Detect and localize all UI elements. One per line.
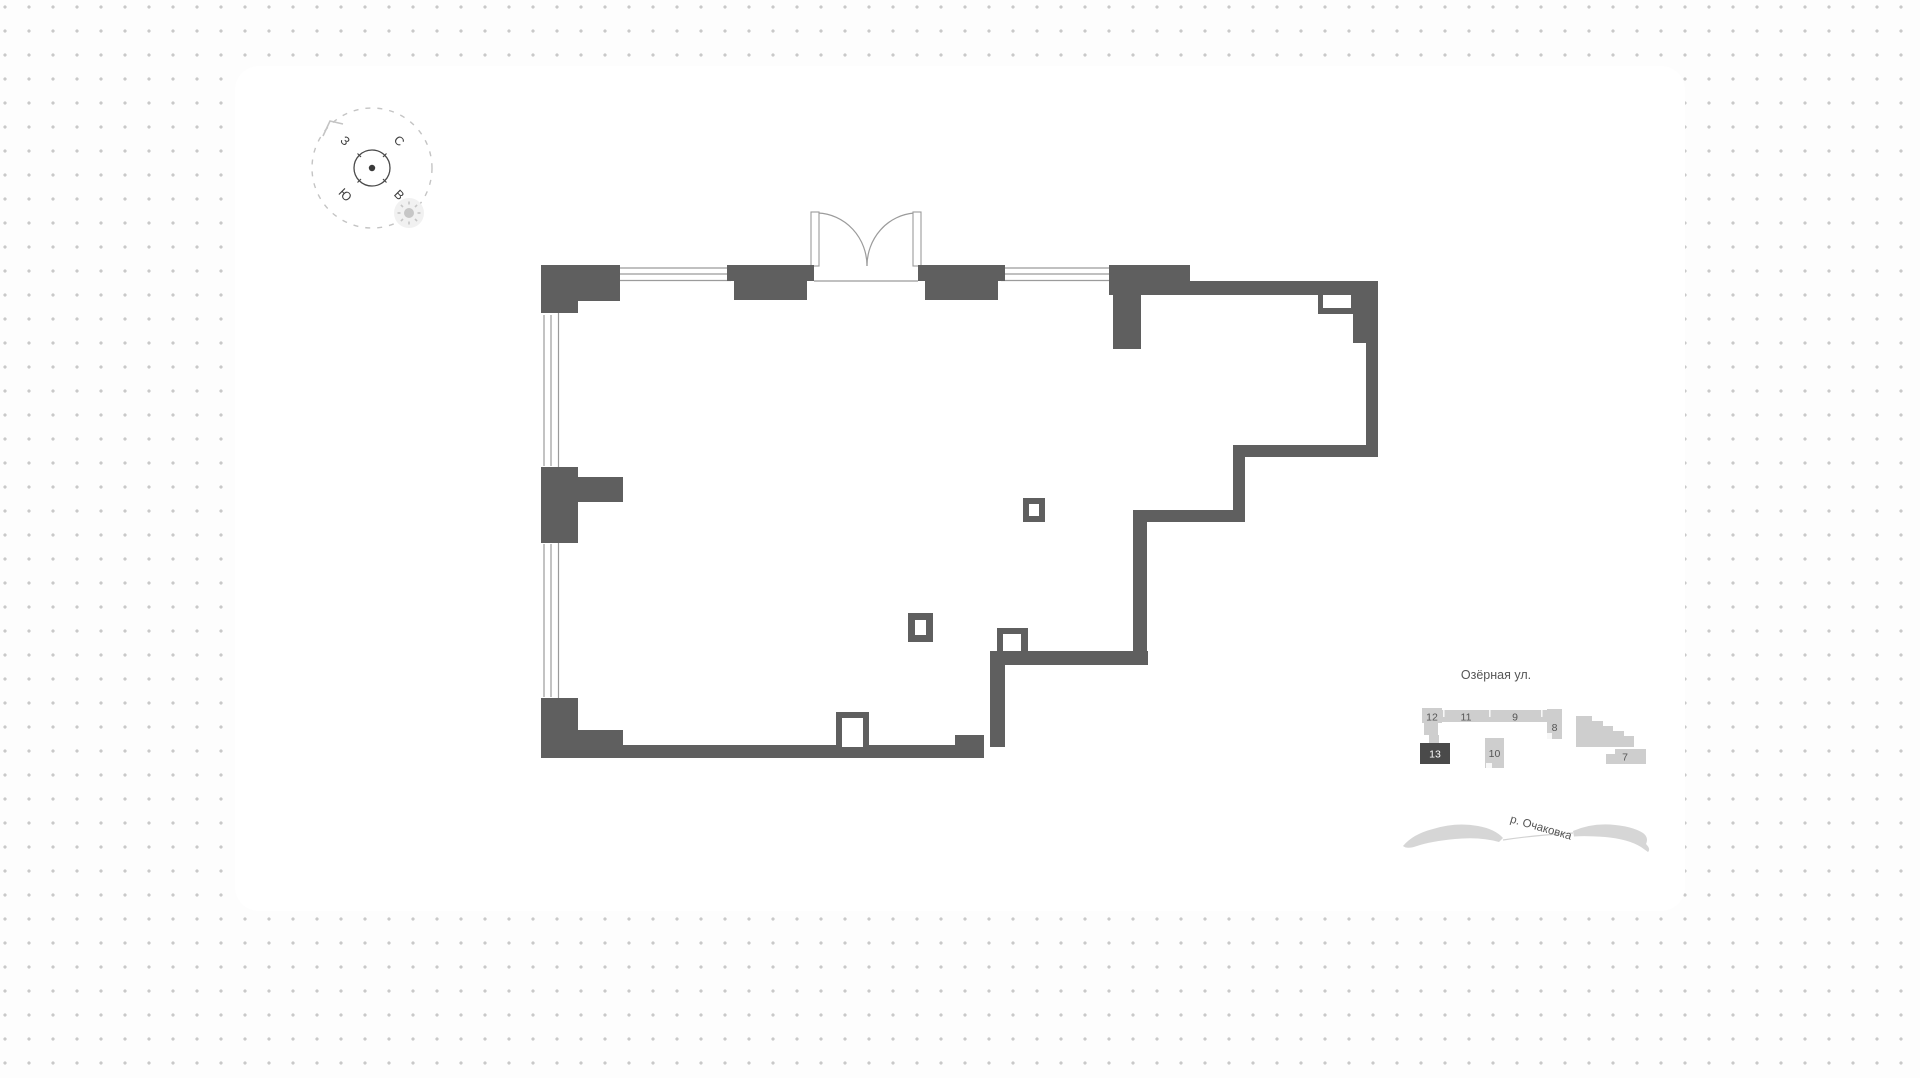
door-leaf-arc-left (818, 213, 867, 266)
wall-right (1366, 295, 1378, 457)
wall-corner-bottom-left (541, 698, 623, 758)
building-separator (1541, 710, 1543, 717)
wall-pillar (1113, 265, 1141, 349)
river-segment-right (1573, 824, 1649, 852)
window-top-left (618, 268, 731, 281)
wall-niche-opening (1323, 295, 1351, 308)
building-13-label[interactable]: 13 (1429, 749, 1441, 761)
floor-plan-overlay: С В Ю З (0, 0, 1920, 1078)
column-core (915, 620, 926, 635)
building-7-label[interactable]: 7 (1622, 752, 1628, 764)
mini-map: Озёрная ул. (1403, 668, 1649, 852)
building-connector (1429, 735, 1439, 744)
wall-segment (1190, 281, 1378, 295)
wall-bottom (620, 745, 984, 758)
compass-arrow-icon (323, 121, 343, 136)
window-top-right (1001, 268, 1113, 281)
compass-center-dot (369, 165, 375, 171)
river-segment-left (1403, 825, 1503, 848)
building-7-upper-shape[interactable] (1576, 716, 1634, 747)
building-connector (1424, 722, 1438, 735)
door-leaf-arc-right (867, 213, 914, 266)
wall-segment (925, 265, 998, 300)
window-left-lower (544, 542, 559, 699)
building-12-label[interactable]: 12 (1426, 712, 1438, 724)
floor-plan (541, 212, 1378, 758)
wall-step (1003, 651, 1148, 665)
wall-niche-opening (842, 718, 863, 747)
river: р. Очаковка (1403, 814, 1649, 852)
building-separator (1443, 710, 1445, 717)
compass: С В Ю З (312, 108, 432, 228)
door-frame-right (913, 212, 921, 266)
building-10-label[interactable]: 10 (1489, 748, 1501, 760)
wall-corner-top-left (541, 265, 620, 313)
door-frame-left (811, 212, 819, 266)
building-separator (1489, 710, 1491, 717)
wall-step (990, 651, 1005, 747)
wall-step (1233, 445, 1378, 457)
building-notch (1486, 763, 1492, 768)
wall-niche-opening (1003, 634, 1021, 651)
wall-segment (734, 265, 807, 300)
window-left-upper (544, 313, 559, 468)
column-core (1029, 504, 1039, 516)
wall-step (1133, 510, 1245, 522)
wall-step (1133, 510, 1147, 665)
entrance-door (811, 212, 921, 266)
building-8-label[interactable]: 8 (1552, 722, 1558, 734)
street-label: Озёрная ул. (1461, 668, 1531, 682)
building-11-label[interactable]: 11 (1461, 712, 1472, 724)
compass-direction-north: С (391, 133, 407, 149)
page-background: С В Ю З (0, 0, 1920, 1078)
compass-direction-west: З (337, 133, 352, 148)
sun-icon (394, 198, 424, 228)
compass-direction-south: Ю (336, 186, 355, 205)
building-9-label[interactable]: 9 (1512, 712, 1518, 724)
wall-pier-left (541, 467, 623, 543)
